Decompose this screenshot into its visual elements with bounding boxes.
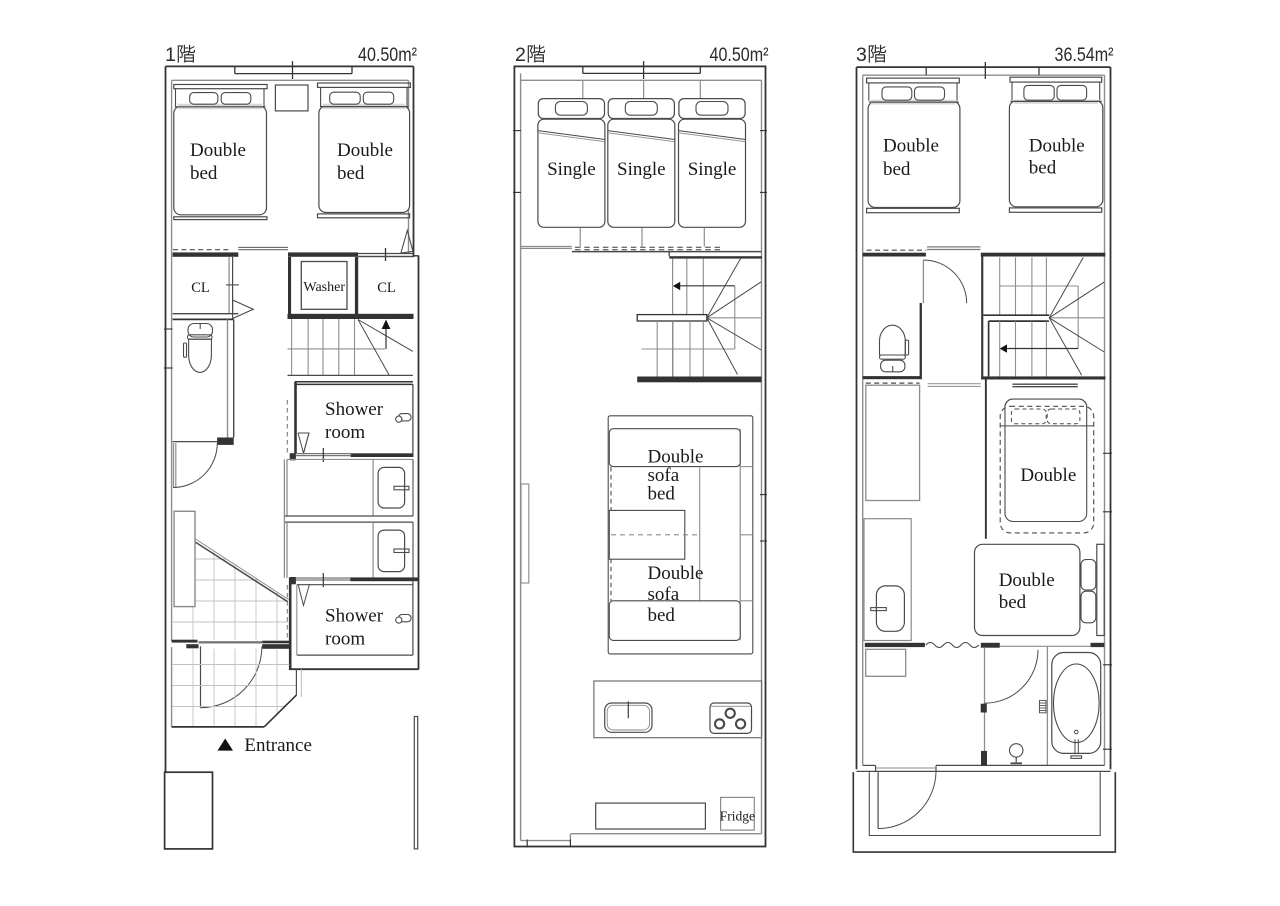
- svg-text:1: 1: [165, 44, 176, 66]
- svg-text:40.50m²: 40.50m²: [710, 44, 769, 66]
- svg-text:Single: Single: [617, 159, 666, 180]
- svg-text:bed: bed: [337, 163, 365, 184]
- svg-text:Shower: Shower: [325, 606, 384, 627]
- svg-text:Entrance: Entrance: [244, 735, 312, 756]
- svg-text:CL: CL: [377, 280, 396, 296]
- svg-text:bed: bed: [648, 484, 676, 505]
- svg-text:CL: CL: [191, 280, 210, 296]
- svg-text:Single: Single: [547, 159, 596, 180]
- svg-text:bed: bed: [190, 163, 218, 184]
- svg-text:Single: Single: [688, 159, 737, 180]
- svg-text:Double: Double: [190, 140, 246, 161]
- svg-text:room: room: [325, 422, 365, 443]
- svg-text:3: 3: [856, 44, 867, 66]
- svg-text:bed: bed: [1029, 158, 1057, 179]
- svg-text:bed: bed: [883, 159, 911, 180]
- svg-text:bed: bed: [999, 592, 1027, 613]
- svg-text:Double: Double: [337, 140, 393, 161]
- svg-text:Shower: Shower: [325, 399, 384, 420]
- svg-text:Double: Double: [999, 570, 1055, 591]
- svg-text:Double: Double: [883, 136, 939, 157]
- svg-text:Washer: Washer: [303, 280, 345, 295]
- svg-text:room: room: [325, 628, 365, 649]
- svg-text:Double: Double: [1020, 465, 1076, 486]
- svg-text:40.50m²: 40.50m²: [358, 44, 417, 66]
- svg-text:Fridge: Fridge: [720, 809, 755, 824]
- svg-text:Double: Double: [648, 563, 704, 584]
- svg-text:2: 2: [515, 44, 526, 66]
- svg-text:36.54m²: 36.54m²: [1055, 44, 1114, 66]
- svg-text:Double: Double: [1029, 136, 1085, 157]
- svg-text:sofa: sofa: [648, 584, 680, 605]
- svg-text:bed: bed: [648, 605, 676, 626]
